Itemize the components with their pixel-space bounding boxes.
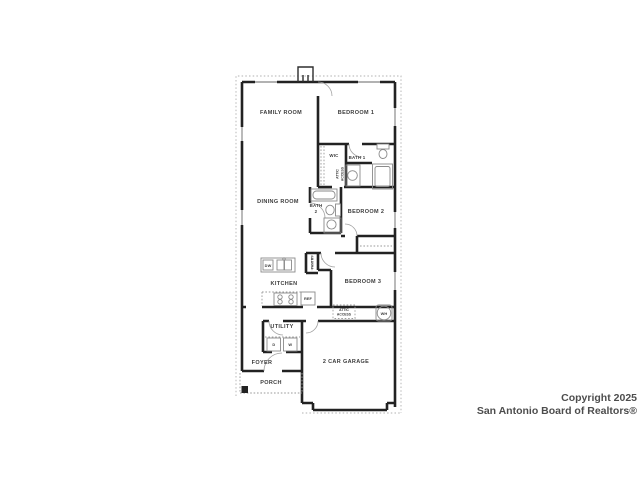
- bath2-label-line2: 2: [315, 209, 318, 214]
- walls: [242, 67, 396, 410]
- pantry-label: PANTRY: [311, 255, 315, 269]
- porch-post: [242, 386, 249, 393]
- range: [274, 293, 297, 306]
- bedroom2-label: BEDROOM 2: [348, 209, 384, 215]
- utility-label: UTILITY: [270, 324, 293, 330]
- bath1-shower: [373, 164, 393, 189]
- bath1-sink: [346, 165, 360, 186]
- kitchen-label: KITCHEN: [271, 281, 298, 287]
- fixtures: [240, 144, 393, 393]
- kitchen-counter: [262, 292, 302, 306]
- bath2-tub: [311, 189, 337, 201]
- bedroom1-label: BEDROOM 1: [338, 110, 374, 116]
- family-room-label: FAMILY ROOM: [260, 110, 302, 116]
- garage-label: 2 CAR GARAGE: [323, 359, 369, 365]
- attic-access-hall-line1: ATTIC: [336, 169, 340, 179]
- bath2-toilet: [326, 204, 341, 216]
- bath2-label-line1: BATH: [310, 203, 323, 208]
- floor-plan-image: FAMILY ROOM BEDROOM 1 WIC BATH 1 DINING …: [0, 0, 640, 480]
- foyer-label: FOYER: [252, 360, 273, 366]
- washer-label: W: [288, 342, 292, 347]
- copyright-watermark: Copyright 2025 San Antonio Board of Real…: [477, 392, 637, 417]
- utility-appliances: [265, 337, 300, 351]
- wic-shelves: [321, 146, 324, 185]
- dryer-label: D: [272, 342, 275, 347]
- bath2-sink: [324, 218, 341, 233]
- bath1-label: BATH 1: [349, 155, 366, 160]
- attic-access-garage-line2: ACCESS: [337, 313, 352, 317]
- chimney: [298, 67, 313, 82]
- refrigerator-label: REF: [304, 296, 313, 301]
- bedroom3-label: BEDROOM 3: [345, 279, 381, 285]
- bath1-toilet: [377, 144, 389, 159]
- dining-room-label: DINING ROOM: [257, 199, 299, 205]
- dishwasher-label: DW: [265, 263, 272, 268]
- porch-label: PORCH: [260, 380, 282, 386]
- watermark-line2: San Antonio Board of Realtors®: [477, 405, 637, 418]
- watermark-line1: Copyright 2025: [477, 392, 637, 405]
- water-heater-label: WH: [381, 311, 388, 316]
- wic-label: WIC: [329, 153, 339, 158]
- attic-access-hall-line2: ACCESS: [341, 166, 345, 181]
- attic-access-garage-line1: ATTIC: [339, 308, 349, 312]
